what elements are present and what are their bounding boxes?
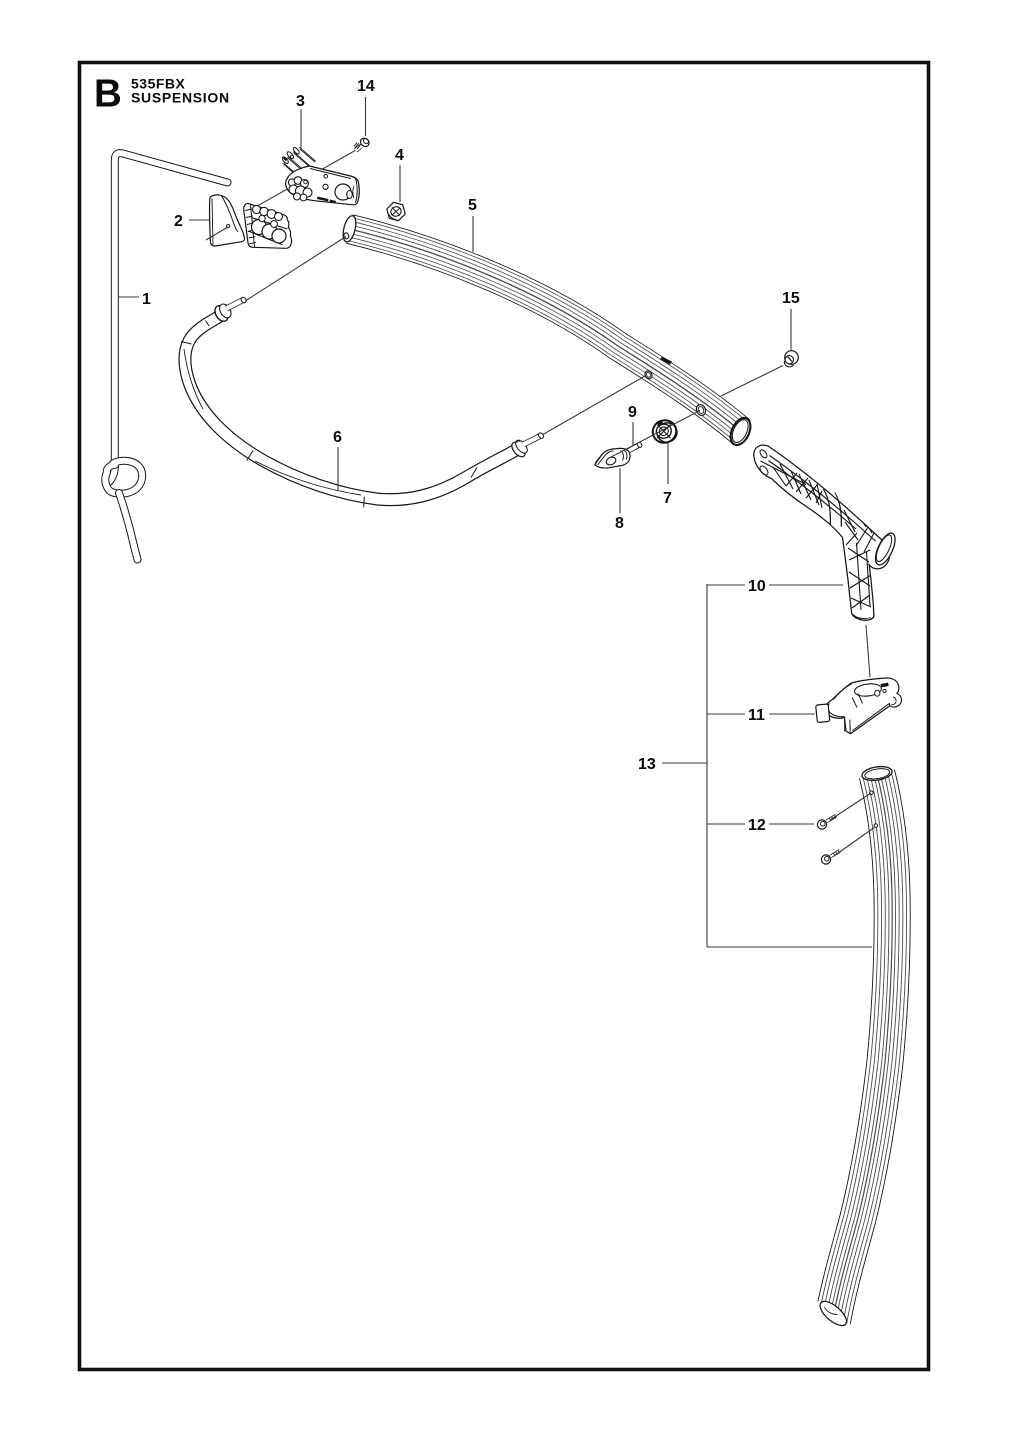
svg-text:8: 8 [615,515,624,532]
svg-text:14: 14 [357,78,375,95]
svg-text:9: 9 [628,404,637,421]
svg-text:6: 6 [333,429,342,446]
svg-text:SUSPENSION: SUSPENSION [131,90,230,106]
svg-text:13: 13 [638,756,656,773]
svg-text:B: B [94,73,122,116]
svg-text:4: 4 [395,147,404,164]
svg-text:1: 1 [142,291,151,308]
svg-text:7: 7 [663,490,672,507]
svg-text:3: 3 [296,93,305,110]
svg-text:12: 12 [748,817,766,834]
svg-text:15: 15 [782,290,800,307]
svg-text:5: 5 [468,197,477,214]
svg-text:2: 2 [174,213,183,230]
svg-text:11: 11 [748,707,765,724]
svg-text:10: 10 [748,578,766,595]
